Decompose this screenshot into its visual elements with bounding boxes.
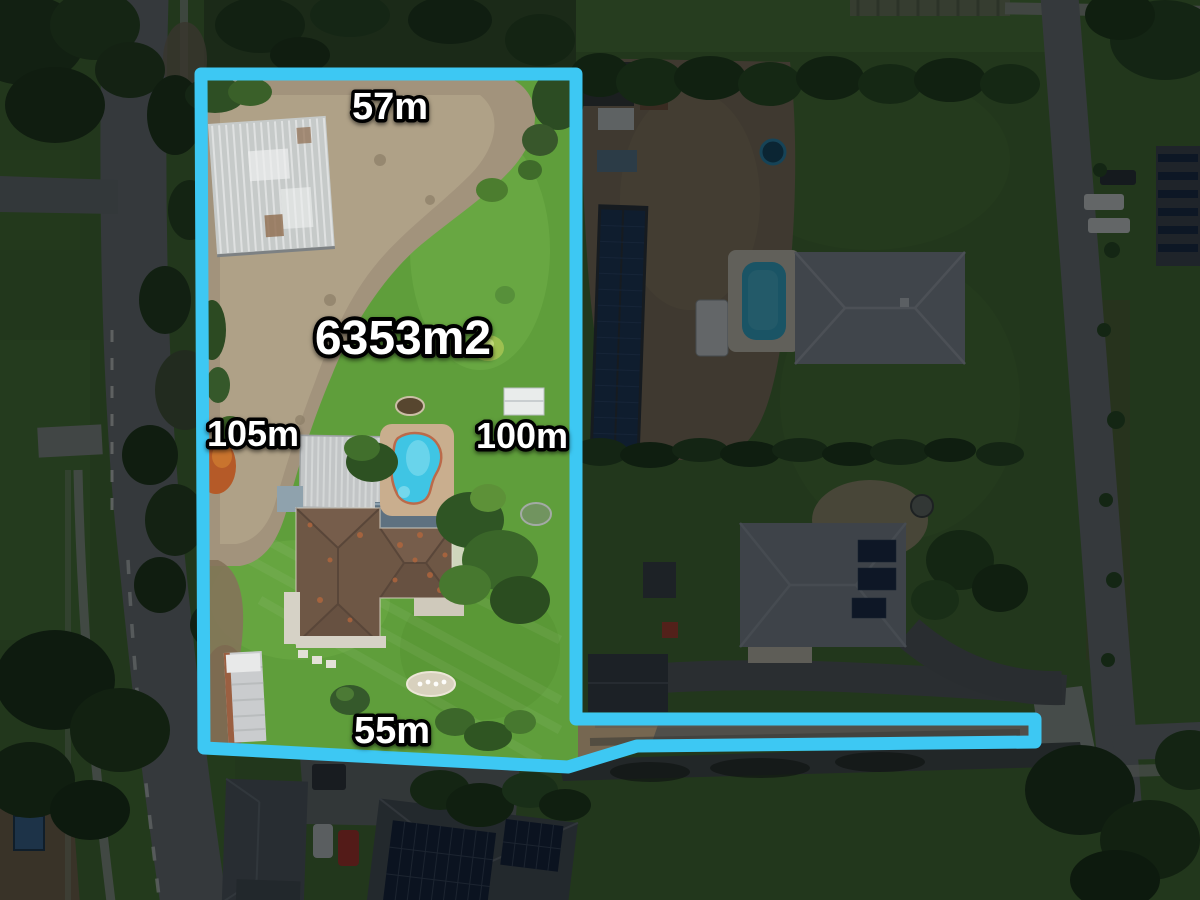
outside-dim-overlay [0,0,1200,900]
bottom-boundary-label: 55m [354,710,430,752]
area-label: 6353m2 [315,312,491,365]
top-boundary-label: 57m [352,86,428,128]
metal-shed [208,116,335,256]
garden-pond [521,503,551,525]
garden-ring [396,397,424,415]
long-shed [224,651,267,743]
aerial-photo-canvas: 57m 6353m2 105m 100m 55m [0,0,1200,900]
aerial-photo: 57m 6353m2 105m 100m 55m [0,0,1200,900]
left-boundary-label: 105m [207,413,299,454]
oval-garden-feature [407,672,455,696]
right-boundary-label: 100m [476,415,568,456]
